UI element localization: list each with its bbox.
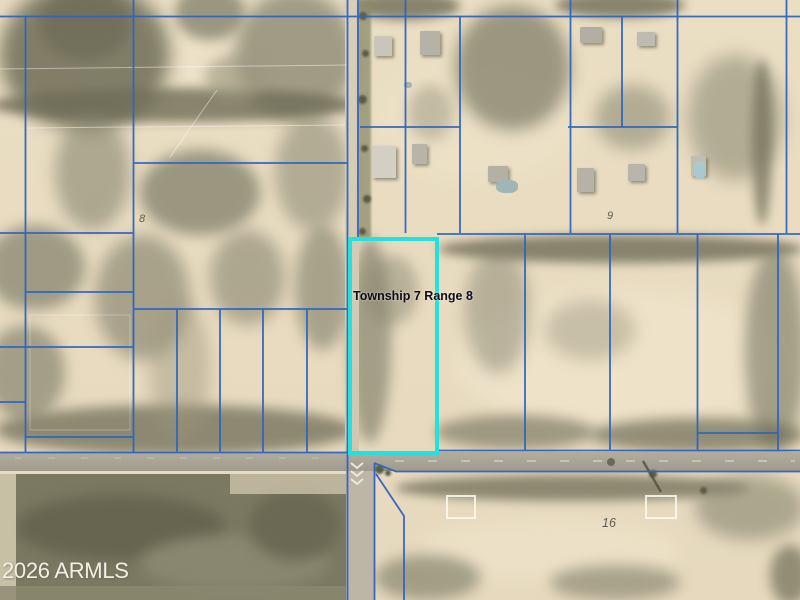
tree — [361, 145, 368, 152]
house-structure — [580, 27, 602, 43]
house-structure — [372, 146, 396, 178]
section-number-9: 9 — [607, 210, 613, 222]
pool-structure — [694, 161, 706, 179]
tree — [359, 228, 366, 235]
pool-structure — [496, 180, 518, 193]
tree — [359, 12, 367, 20]
armls-watermark: 2026 ARMLS — [2, 558, 129, 584]
township-range-label: Township 7 Range 8 — [353, 289, 473, 303]
tree — [375, 465, 384, 474]
tree — [385, 470, 391, 476]
house-structure — [420, 31, 440, 55]
tree — [649, 470, 657, 478]
pool-structure — [404, 82, 412, 88]
tree — [362, 50, 369, 57]
section-number-8: 8 — [139, 213, 145, 225]
house-structure — [374, 36, 392, 56]
tree — [700, 487, 707, 494]
house-structure — [577, 168, 594, 192]
tree — [363, 195, 371, 203]
section-number-16: 16 — [602, 516, 616, 530]
house-structure — [412, 144, 427, 164]
aerial-parcel-map-image: Township 7 Range 8 8 9 16 2026 ARMLS — [0, 0, 800, 600]
house-structure — [637, 32, 655, 46]
tree — [358, 95, 367, 104]
house-structure — [628, 164, 645, 181]
